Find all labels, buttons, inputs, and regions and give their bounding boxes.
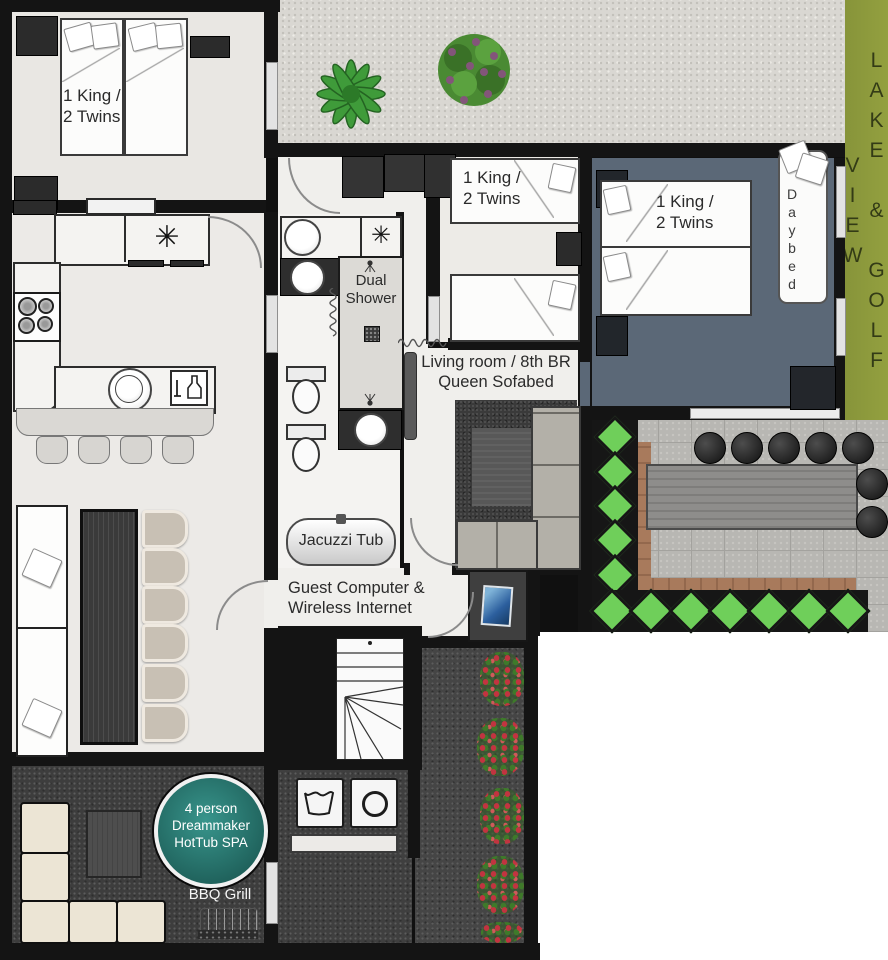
patio-dining-table (646, 464, 858, 530)
br2-nightstand (556, 232, 582, 266)
shower-head-icon-bottom (361, 392, 379, 406)
sectional-sofa-chaise (456, 520, 538, 570)
patio-chair (731, 432, 763, 464)
br1-console (86, 198, 156, 215)
laundry-bench (290, 834, 398, 853)
br3-nightstand-bottom (596, 316, 628, 356)
dual-shower-label: DualShower (340, 272, 402, 309)
dryer-drum-icon (362, 791, 388, 817)
bar-bottle-icon (170, 370, 208, 406)
outdoor-sofa-cushion (20, 900, 70, 944)
dining-chair-5 (142, 664, 188, 702)
hedge-shrub (747, 588, 792, 633)
burner (18, 297, 37, 316)
br1-label: 1 King /2 Twins (63, 86, 121, 127)
dual-shower: DualShower (338, 256, 404, 410)
lake-golf-view-strip: LAKE & GOLF VIEW (845, 0, 888, 422)
flower-bed (477, 856, 524, 914)
patio-hedge-bottom (592, 590, 868, 632)
burner (38, 298, 54, 314)
br1-door-gap (266, 62, 278, 130)
floor-plan: LAKE & GOLF VIEW (0, 0, 888, 960)
jacuzzi-tub: Jacuzzi Tub (286, 518, 396, 566)
dining-chair-4 (142, 624, 188, 662)
patio-chair (768, 432, 800, 464)
appliance-handle-2 (170, 260, 204, 267)
dining-banquette (16, 505, 68, 757)
bath-sink-2 (290, 260, 325, 295)
shower-drain (364, 326, 380, 342)
outdoor-ottoman (86, 810, 142, 878)
bar-stool-4 (162, 436, 194, 464)
daybed: Daybed (778, 150, 828, 304)
wall-path-right (524, 636, 538, 945)
hall-closet-2 (384, 154, 428, 192)
kitchen-fan-tile: ✳ (124, 214, 208, 262)
flowering-bush (424, 22, 524, 118)
island-sink-inner (115, 375, 143, 403)
empty-area (538, 632, 888, 960)
dining-chair-3 (142, 586, 188, 624)
outdoor-sofa-cushion (20, 802, 70, 854)
bbq-label: BBQ Grill (168, 886, 272, 904)
burner (18, 317, 35, 334)
dining-chair-2 (142, 548, 188, 586)
washer-icon (299, 781, 339, 823)
ceiling-fan-icon: ✳ (371, 222, 391, 249)
br3-window-top (836, 166, 846, 238)
jacuzzi-label: Jacuzzi Tub (288, 531, 394, 551)
patio-chair (856, 506, 888, 538)
flower-bed (477, 718, 524, 776)
flower-bed (481, 922, 523, 943)
stove (13, 292, 61, 342)
sectional-sofa-right (531, 406, 581, 570)
br3-window-bottom (836, 298, 846, 356)
flower-bed (480, 788, 524, 844)
br3-label: 1 King /2 Twins (656, 192, 714, 233)
kitchen-pass-window (266, 295, 278, 353)
wall-bottom (0, 943, 540, 960)
burner (37, 316, 53, 332)
br1-nightstand-tl (16, 16, 58, 56)
grill-body (200, 908, 258, 932)
bar-stool-1 (36, 436, 68, 464)
bbq-grill (198, 908, 260, 942)
banquette-pillow-1 (21, 548, 62, 588)
wall-left (0, 0, 12, 948)
hedge-shrub (826, 588, 871, 633)
spiky-plant (308, 50, 394, 138)
stair-steps (337, 639, 403, 759)
br3-bed-bottom (600, 246, 752, 316)
dining-chair-1 (142, 510, 188, 548)
grill-base (198, 930, 258, 939)
patio-chair (842, 432, 874, 464)
patio-chair (805, 432, 837, 464)
bath-sink-1 (284, 219, 321, 256)
br3-media-cabinet (790, 366, 836, 410)
bath-sink-3 (354, 413, 388, 447)
flower-bed (480, 652, 524, 706)
shower-curtain-squiggle (327, 288, 339, 338)
hedge-shrub (628, 588, 673, 633)
bath-fan-tile: ✳ (360, 216, 400, 256)
tub-faucet (336, 514, 346, 524)
view-strip-label: LAKE & GOLF VIEW (845, 0, 888, 422)
staircase (336, 638, 404, 760)
br1-nightstand-tr (190, 36, 230, 58)
patio-chair (694, 432, 726, 464)
patio-hedge-left (592, 420, 638, 592)
wall-top (0, 0, 280, 12)
washer (296, 778, 344, 828)
computer-monitor-icon (481, 585, 514, 627)
toilet1-bowl (292, 379, 320, 414)
dining-chair-6 (142, 704, 188, 742)
outdoor-sofa-cushion (68, 900, 118, 944)
bar-counter (16, 408, 214, 436)
bar-stool-2 (78, 436, 110, 464)
dryer (350, 778, 398, 828)
toilet2-bowl (292, 437, 320, 472)
wall-laundry-right (408, 758, 420, 858)
hot-tub-label: 4 person Dreammaker HotTub SPA (158, 800, 264, 851)
accordion-door-squiggle (398, 336, 450, 350)
br3-door-gap (580, 362, 590, 408)
appliance-handle-1 (128, 260, 164, 267)
hall-closet-1 (342, 156, 384, 198)
banquette-pillow-2 (21, 698, 62, 738)
outdoor-sofa-cushion (116, 900, 166, 944)
wall-under-courtyard (264, 143, 845, 157)
hot-tub: 4 person Dreammaker HotTub SPA (154, 774, 268, 888)
br2-label: 1 King /2 Twins (463, 168, 521, 209)
bar-stool-3 (120, 436, 152, 464)
outdoor-sofa-cushion (20, 852, 70, 902)
wall-kitchen-bath (264, 212, 278, 758)
fridge (13, 200, 57, 215)
computer-desk (468, 570, 528, 642)
living-room-label: Living room / 8th BRQueen Sofabed (414, 352, 578, 392)
ceiling-fan-icon: ✳ (154, 221, 179, 254)
patio-chair (856, 468, 888, 500)
dining-table (80, 509, 138, 745)
br1-bed-right (124, 18, 188, 156)
guest-computer-label: Guest Computer &Wireless Internet (288, 578, 425, 618)
daybed-label: Daybed (784, 186, 800, 294)
br2-bed-bottom (450, 274, 580, 342)
living-door-gap (410, 563, 452, 575)
